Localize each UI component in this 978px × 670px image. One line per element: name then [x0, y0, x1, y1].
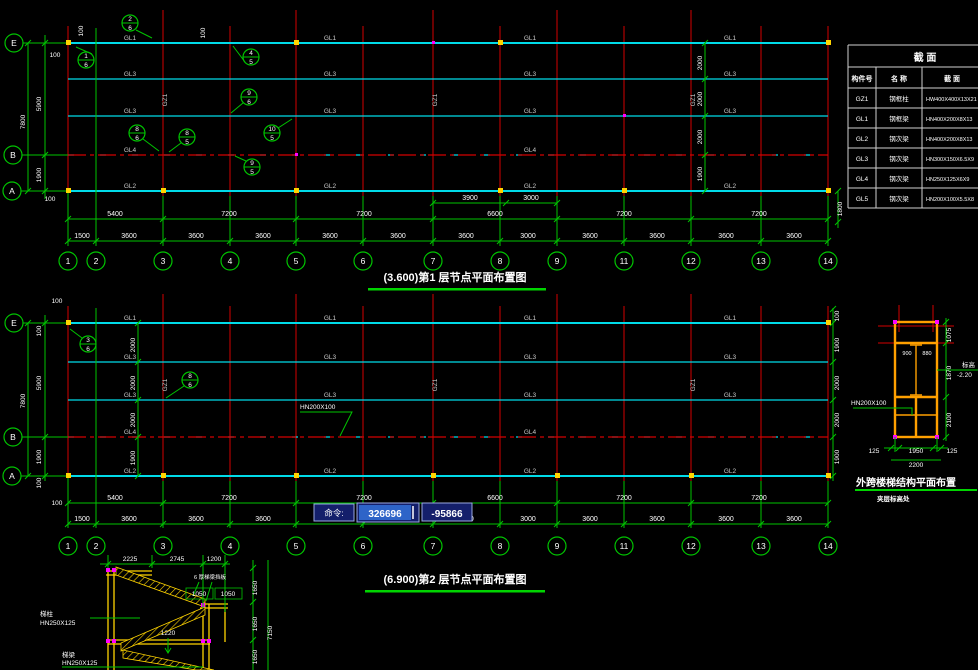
col-label: 8	[498, 256, 503, 266]
detail-num: 9	[247, 90, 251, 97]
detail-den: 6	[135, 135, 139, 142]
beam-label: GL1	[724, 315, 737, 322]
dim: 3600	[255, 516, 271, 523]
dim: 100	[52, 298, 63, 305]
dim: 1650	[252, 649, 259, 664]
beam-label: GL3	[524, 108, 537, 115]
note: 6 厚梯梁挡板	[194, 573, 227, 581]
dim: 3600	[582, 516, 598, 523]
beam-label: GL2	[524, 468, 537, 475]
dim: 7200	[751, 495, 767, 502]
member-size-label: HN200X100	[851, 400, 887, 407]
beam-label: GL2	[324, 183, 337, 190]
beam-label: GL1	[324, 35, 337, 42]
member-name: 钢次梁	[889, 194, 909, 203]
dim: 125	[947, 448, 958, 455]
dim: 3600	[649, 516, 665, 523]
dim: 1050	[192, 591, 207, 598]
dim: 100	[834, 310, 841, 321]
dim: 2000	[697, 91, 704, 106]
detail-num: 8	[135, 126, 139, 133]
plan1-node-markers-magenta	[295, 41, 626, 156]
dim: 100	[78, 25, 85, 36]
beam-label: GL1	[324, 315, 337, 322]
row-label: E	[11, 318, 17, 328]
dim: 7800	[20, 393, 27, 408]
beam-label: GL2	[124, 183, 137, 190]
dim: 5400	[107, 495, 123, 502]
dim: 1900	[36, 449, 43, 464]
beam-size-label: HN200X100	[300, 404, 336, 411]
col-label: 11	[620, 256, 629, 266]
dim: 3600	[786, 233, 802, 240]
beam-label: GL4	[124, 429, 137, 436]
command-input-value2[interactable]: -95866	[431, 509, 463, 520]
cad-viewport[interactable]: E B A 1 2 3 4 5 6 7 8 9 11 12 13 14 5400…	[0, 0, 978, 670]
dim: 6600	[487, 495, 503, 502]
beam-label: GL1	[724, 35, 737, 42]
row-label: E	[11, 38, 17, 48]
beam-label: GL2	[124, 468, 137, 475]
command-input-value[interactable]: 326696	[368, 509, 402, 520]
col-label: 8	[498, 541, 503, 551]
col-label: 6	[361, 256, 366, 266]
dim: 7800	[20, 114, 27, 129]
beam-label: GL3	[324, 71, 337, 78]
stair-flight-upper	[116, 567, 205, 607]
detail-den: 5	[250, 169, 254, 176]
member-section: HN400X200X8X13	[926, 137, 972, 143]
plan1-edge-beams-cyan	[68, 43, 828, 191]
detail-den: 6	[247, 99, 251, 106]
beam-label: GL3	[324, 354, 337, 361]
table-header: 构件号	[852, 74, 873, 83]
detail-num: 1	[84, 53, 88, 60]
cad-application-window: E B A 1 2 3 4 5 6 7 8 9 11 12 13 14 5400…	[0, 0, 978, 670]
dim: 7200	[356, 211, 372, 218]
detail-num: 9	[250, 160, 254, 167]
member-section: HN200X100X5.5X8	[926, 197, 974, 203]
dim: 7200	[356, 495, 372, 502]
dim: 3600	[718, 516, 734, 523]
dim: 2000	[834, 412, 841, 427]
member-id: GL1	[856, 116, 869, 123]
dim: 880	[922, 351, 931, 357]
dim: 1800	[837, 201, 844, 216]
beam-label: GL2	[524, 183, 537, 190]
stair-plan-title: 外跨楼梯结构平面布置	[855, 476, 956, 489]
beam-label: GL3	[324, 108, 337, 115]
stair-elevation-detail: 2225 2745 1200 1050 1050 1220 6 厚梯梁挡板 16…	[40, 555, 274, 670]
dim: 2000	[130, 412, 137, 427]
plan2-beam-labels: GL1 GL1 GL1 GL1 GL3 GL3 GL3 GL3 GL3 GL3 …	[124, 315, 737, 475]
dim: 2100	[946, 412, 953, 427]
row-label: B	[10, 150, 16, 160]
col-label: 14	[823, 256, 833, 266]
beam-label: GL2	[724, 468, 737, 475]
dim: 1200	[207, 556, 222, 563]
plan2-col-bubbles: 1 2 3 4 5 6 7 8 9 11 12 13 14	[59, 537, 837, 555]
detail-num: 8	[185, 130, 189, 137]
dim: 3900	[462, 195, 478, 202]
dim: 3600	[322, 233, 338, 240]
member-name: 钢次梁	[889, 154, 909, 163]
dim: 1075	[946, 327, 953, 342]
beam-label: GL4	[524, 147, 537, 154]
dim: 3000	[520, 516, 536, 523]
beam-label: GL3	[724, 354, 737, 361]
col-label: 2	[94, 256, 99, 266]
member-id: GZ1	[856, 96, 869, 103]
member-id: GL3	[856, 156, 869, 163]
detail-den: 6	[86, 346, 90, 353]
beam-label: GL3	[724, 392, 737, 399]
col-label: 13	[756, 541, 766, 551]
plan2-dimension-lines-green	[21, 308, 833, 528]
section-table: 截 面 构件号 名 称 截 面 GZ1 钢框柱 HW400X400X13X21 …	[848, 45, 978, 208]
plan1-grid-columns-red	[68, 10, 828, 196]
dim: 2745	[170, 556, 185, 563]
dim: 7200	[616, 495, 632, 502]
dim: 1900	[130, 450, 137, 465]
dim: 3000	[523, 195, 539, 202]
stair-plan-grid-red	[878, 305, 954, 343]
dim: 100	[52, 500, 63, 507]
dim: 125	[869, 448, 880, 455]
dim: 100	[36, 477, 43, 488]
dim: 3600	[582, 233, 598, 240]
dim: 7150	[267, 625, 274, 640]
beam-label: GL3	[524, 71, 537, 78]
dim: 3600	[255, 233, 271, 240]
dim: 1650	[252, 580, 259, 595]
dim: 7200	[751, 211, 767, 218]
beam-label: GL3	[124, 354, 137, 361]
plan2-column-markers-yellow	[66, 320, 831, 478]
beam-label: GL1	[524, 315, 537, 322]
plan1-title: (3.600)第1 层节点平面布置图	[383, 270, 526, 284]
plan2-member-callout: HN200X100	[300, 404, 352, 436]
beam-label: GL2	[324, 468, 337, 475]
dim: 7200	[221, 495, 237, 502]
dim: 1050	[221, 591, 236, 598]
beam-label: GL3	[324, 392, 337, 399]
member-size-label: HN250X125	[40, 620, 76, 627]
dim: 1900	[697, 166, 704, 181]
beam-label: GL3	[524, 354, 537, 361]
row-label: B	[10, 432, 16, 442]
dim: 1870	[946, 365, 953, 380]
dim: 6600	[487, 211, 503, 218]
detail-den: 6	[128, 25, 132, 32]
plan1-col-bubbles: 1 2 3 4 5 6 7 8 9 11 12 13 14	[59, 252, 837, 270]
dim: 900	[902, 351, 911, 357]
member-section: HN300X150X6.5X9	[926, 157, 974, 163]
stair-plan-detail: 1075 1870 2100 125 1950 125 2200 900 880…	[851, 305, 978, 503]
plan1-beam-labels: GL1 GL1 GL1 GL1 GL3 GL3 GL3 GL3 GL3 GL3 …	[124, 35, 737, 190]
detail-num: 8	[188, 373, 192, 380]
member-id: GL5	[856, 196, 869, 203]
beam-label: GL3	[724, 108, 737, 115]
plan2-title-underline	[365, 590, 545, 593]
dim: 3600	[649, 233, 665, 240]
column-label: GZ1	[162, 378, 169, 391]
plan2-dim-texts: 5400 7200 7200 6600 7200 7200 1500 3600 …	[20, 298, 841, 523]
column-label: GZ1	[162, 93, 169, 106]
member-section: HW400X400X13X21	[926, 97, 977, 103]
dim: 2000	[697, 55, 704, 70]
dim: 2000	[130, 337, 137, 352]
member-name: 钢框柱	[889, 94, 909, 103]
detail-num: 3	[86, 337, 90, 344]
dim: 2200	[909, 462, 924, 469]
dim: 1650	[252, 616, 259, 631]
dim: 1900	[36, 167, 43, 182]
plan1-secondary-beams-cyan	[68, 79, 828, 116]
member-name: 钢次梁	[889, 134, 909, 143]
dim: 2000	[130, 375, 137, 390]
col-label: 13	[756, 256, 766, 266]
member-name-label: 梯梁	[62, 650, 76, 659]
col-label: 3	[161, 541, 166, 551]
dim: 5400	[107, 211, 123, 218]
detail-num: 10	[268, 126, 276, 133]
section-table-grid	[848, 45, 978, 208]
col-label: 7	[431, 541, 436, 551]
beam-label: GL1	[124, 315, 137, 322]
dim: 100	[50, 52, 61, 59]
dim: 3600	[390, 233, 406, 240]
row-label: A	[9, 186, 15, 196]
command-prompt-label: 命令:	[324, 508, 343, 518]
dim: 3600	[121, 233, 137, 240]
table-header: 截 面	[944, 74, 960, 83]
plan2-dim-ticks	[25, 306, 836, 527]
dim: 5900	[36, 375, 43, 390]
dim: 3600	[121, 516, 137, 523]
dim: 5900	[36, 96, 43, 111]
table-row: GL1 钢框梁 HN400X200X8X13	[856, 114, 973, 123]
dim: 2000	[697, 129, 704, 144]
dim: 1220	[161, 630, 176, 637]
dim: 3600	[458, 233, 474, 240]
dim: 3000	[520, 233, 536, 240]
dim: 3600	[188, 233, 204, 240]
col-label: 12	[686, 541, 696, 551]
stair-plan-title-underline	[855, 489, 977, 491]
detail-den: 6	[84, 62, 88, 69]
table-row: GL5 钢次梁 HN200X100X5.5X8	[856, 194, 974, 203]
dim: 1950	[909, 448, 924, 455]
col-label: 1	[66, 256, 71, 266]
dim: 3600	[188, 516, 204, 523]
dim: 1900	[834, 337, 841, 352]
beam-label: GL3	[524, 392, 537, 399]
member-id: GL4	[856, 176, 869, 183]
beam-label: GL2	[724, 183, 737, 190]
plan1-title-underline	[368, 288, 546, 291]
plan2-title: (6.900)第2 层节点平面布置图	[383, 572, 526, 586]
stair-plan-subtitle: 夹层标高处	[877, 494, 910, 503]
dim: 1500	[74, 516, 90, 523]
dim: 2225	[123, 556, 138, 563]
dim: 100	[36, 325, 43, 336]
plan1-detail-bubbles: 26 16 45 96 86 85 105 95	[76, 15, 292, 176]
col-label: 9	[555, 256, 560, 266]
beam-label: GL1	[124, 35, 137, 42]
dim: 100	[200, 27, 207, 38]
dim: 2000	[834, 375, 841, 390]
detail-num: 4	[249, 50, 253, 57]
elevation-label: 标高	[962, 360, 976, 369]
plan1: E B A 1 2 3 4 5 6 7 8 9 11 12 13 14 5400…	[3, 10, 844, 291]
dim: 7200	[616, 211, 632, 218]
col-label: 14	[823, 541, 833, 551]
member-name: 钢次梁	[889, 174, 909, 183]
column-label: GZ1	[432, 93, 439, 106]
beam-label: GL3	[724, 71, 737, 78]
col-label: 4	[228, 541, 233, 551]
table-row: GL2 钢次梁 HN400X200X8X13	[856, 134, 973, 143]
member-name-label: 梯柱	[40, 609, 54, 618]
member-section: HN400X200X8X13	[926, 117, 972, 123]
detail-den: 5	[249, 59, 253, 66]
table-row: GL4 钢次梁 HN250X125X6X9	[856, 174, 970, 183]
dim: 1900	[834, 449, 841, 464]
beam-label: GL4	[124, 147, 137, 154]
detail-den: 6	[188, 382, 192, 389]
table-row: GZ1 钢框柱 HW400X400X13X21	[856, 94, 977, 103]
column-label: GZ1	[690, 378, 697, 391]
member-id: GL2	[856, 136, 869, 143]
column-label: GZ1	[432, 378, 439, 391]
col-label: 7	[431, 256, 436, 266]
col-label: 5	[294, 541, 299, 551]
row-label: A	[9, 471, 15, 481]
col-label: 3	[161, 256, 166, 266]
dim: 3600	[786, 516, 802, 523]
member-size-label: HN250X125	[62, 660, 98, 667]
col-label: 11	[620, 541, 629, 551]
detail-den: 5	[270, 135, 274, 142]
table-row: GL3 钢次梁 HN300X150X6.5X9	[856, 154, 974, 163]
table-header: 名 称	[891, 74, 907, 83]
col-label: 4	[228, 256, 233, 266]
member-section: HN250X125X6X9	[926, 177, 969, 183]
stair-elev-dim-lines	[62, 555, 268, 670]
dim: 7200	[221, 211, 237, 218]
col-label: 12	[686, 256, 696, 266]
member-name: 钢框梁	[889, 114, 909, 123]
detail-den: 5	[185, 139, 189, 146]
dim: 1500	[74, 233, 90, 240]
col-label: 5	[294, 256, 299, 266]
col-label: 2	[94, 541, 99, 551]
dim: 3600	[718, 233, 734, 240]
beam-label: GL1	[524, 35, 537, 42]
elevation-value: -2.20	[957, 372, 972, 379]
beam-label: GL3	[124, 108, 137, 115]
beam-label: GL4	[524, 429, 537, 436]
detail-num: 2	[128, 16, 132, 23]
command-overlay: 命令: 326696 -95866	[314, 503, 472, 522]
dim: 100	[45, 196, 56, 203]
column-label: GZ1	[690, 93, 697, 106]
col-label: 1	[66, 541, 71, 551]
col-label: 6	[361, 541, 366, 551]
plan2: E B A 1 2 3 4 5 6 7 8 9 11 12 13 14 5400…	[3, 294, 841, 593]
beam-label: GL3	[124, 71, 137, 78]
table-title: 截 面	[914, 51, 937, 64]
beam-label: GL3	[124, 392, 137, 399]
col-label: 9	[555, 541, 560, 551]
